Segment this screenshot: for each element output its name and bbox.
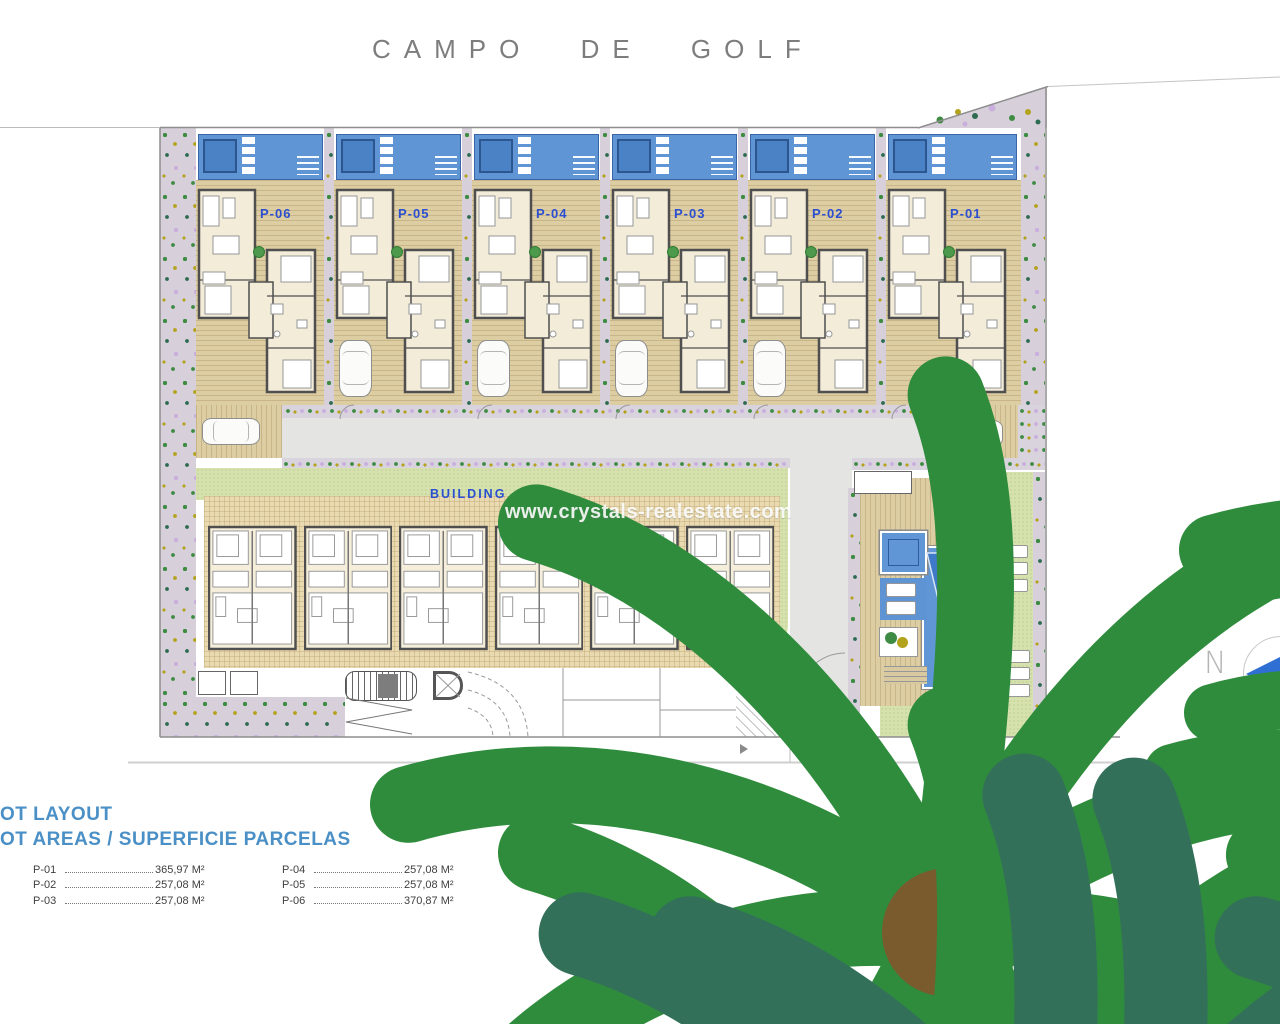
compass-north-label: N <box>1204 646 1226 681</box>
compass-needle-icon <box>1246 657 1280 691</box>
legend-row: P-05 257,08 M² <box>282 876 462 892</box>
plot-area-value: 257,08 M² <box>155 879 213 891</box>
plot-pool <box>888 134 1017 180</box>
pool-slats <box>380 137 393 177</box>
road-south-garden-band <box>282 458 790 468</box>
plot-pool <box>336 134 461 180</box>
plot-name: P-03 <box>33 895 63 907</box>
storage-box <box>198 671 226 695</box>
dotted-leader <box>314 872 402 873</box>
sun-lounger <box>966 706 978 734</box>
plot-name: P-06 <box>282 895 312 907</box>
plot-label: P-03 <box>674 206 705 221</box>
pool-steps-icon <box>991 156 1013 175</box>
plot-area-value: 257,08 M² <box>404 864 462 876</box>
dotted-leader <box>65 887 153 888</box>
elevator <box>433 671 463 700</box>
plot-pool <box>750 134 875 180</box>
sun-lounger <box>886 601 916 615</box>
plot-side-garden <box>324 128 334 405</box>
pool-spa <box>617 139 651 173</box>
sun-lounger <box>948 706 960 734</box>
pool-steps-icon <box>711 156 733 175</box>
main-pool <box>922 546 992 689</box>
plot-cell: P-03 <box>610 128 748 405</box>
legend-row: P-04 257,08 M² <box>282 860 462 876</box>
dotted-leader <box>314 903 402 904</box>
legend-row: P-06 370,87 M² <box>282 891 462 907</box>
car <box>753 340 786 397</box>
plant <box>885 632 897 644</box>
apartment-unit-floorplan <box>304 524 393 652</box>
car <box>202 418 260 445</box>
pool-slats <box>794 137 807 177</box>
car <box>339 340 372 397</box>
pool-spa <box>341 139 375 173</box>
legend-subtitle: OT AREAS / SUPERFICIE PARCELAS <box>0 829 351 851</box>
pool-spa <box>893 139 927 173</box>
dotted-leader <box>314 887 402 888</box>
left-garden-strip <box>160 128 196 737</box>
sun-lounger <box>984 706 996 734</box>
building-units <box>208 524 774 652</box>
plot-name: P-04 <box>282 864 312 876</box>
pool-area-east-garden <box>1033 472 1045 737</box>
building-label: BUILDING <box>430 487 506 501</box>
sun-lounger <box>886 583 916 597</box>
legend-row: P-02 257,08 M² <box>33 876 213 892</box>
plant <box>990 515 1000 525</box>
sun-lounger <box>1000 562 1028 575</box>
plot-side-garden <box>738 128 748 405</box>
page-title: CAMPO DE GOLF <box>372 34 814 65</box>
plot-name: P-02 <box>33 879 63 891</box>
plot-side-garden <box>876 128 886 405</box>
car <box>615 340 648 397</box>
apartment-unit-floorplan <box>208 524 297 652</box>
legend-row: P-03 257,08 M² <box>33 891 213 907</box>
dotted-leader <box>65 872 153 873</box>
sun-lounger <box>1002 667 1030 680</box>
bottom-left-garden <box>160 697 345 737</box>
plot-name: P-05 <box>282 879 312 891</box>
pool-slats <box>656 137 669 177</box>
pool-slats <box>518 137 531 177</box>
plot-cell: P-06 <box>196 128 334 405</box>
plot-cell: P-05 <box>334 128 472 405</box>
watermark: www.crystals-realestate.com <box>505 501 792 524</box>
right-garden-band <box>1018 405 1045 458</box>
legend-row: P-01 365,97 M² <box>33 860 213 876</box>
apartment-unit-floorplan <box>686 524 775 652</box>
pool-area-north-garden <box>852 458 1045 470</box>
dotted-leader <box>65 903 153 904</box>
plot-name: P-01 <box>33 864 63 876</box>
pool-steps <box>884 666 927 684</box>
stairs <box>345 671 417 701</box>
apartment-unit-floorplan <box>495 524 584 652</box>
plot-area-value: 365,97 M² <box>155 864 213 876</box>
legend-title: OT LAYOUT <box>0 804 113 826</box>
plot-label: P-06 <box>260 206 291 221</box>
plot-pool <box>612 134 737 180</box>
car <box>945 420 1003 447</box>
house-floorplan <box>197 184 317 404</box>
pool-steps-icon <box>297 156 319 175</box>
pool-steps-icon <box>849 156 871 175</box>
legend-column-1: P-01 365,97 M² P-02 257,08 M² P-03 257,0… <box>33 860 213 907</box>
pool-steps-icon <box>435 156 457 175</box>
car <box>477 340 510 397</box>
pool-spa <box>203 139 237 173</box>
sun-lounger <box>1002 684 1030 697</box>
sun-lounger <box>1000 579 1028 592</box>
plot-side-garden <box>600 128 610 405</box>
plot-label: P-04 <box>536 206 567 221</box>
plot-area-value: 370,87 M² <box>404 895 462 907</box>
legend-column-2: P-04 257,08 M² P-05 257,08 M² P-06 370,8… <box>282 860 462 907</box>
access-court <box>790 458 852 737</box>
apartment-unit-floorplan <box>399 524 488 652</box>
site-plan-page: CAMPO DE GOLF <box>0 0 1280 1024</box>
plot-area-value: 257,08 M² <box>155 895 213 907</box>
plot-area-value: 257,08 M² <box>404 879 462 891</box>
plot-cell: P-01 <box>886 128 1045 405</box>
pool-slats <box>242 137 255 177</box>
plot-label: P-05 <box>398 206 429 221</box>
pool-spa <box>479 139 513 173</box>
front-garden-band <box>196 405 935 418</box>
storage-box <box>230 671 258 695</box>
pool-spa <box>755 139 789 173</box>
plot-side-garden <box>1021 128 1045 405</box>
plot-label: P-01 <box>950 206 981 221</box>
pool-pavilion <box>854 471 912 494</box>
pool-steps-icon <box>573 156 595 175</box>
plot-side-garden <box>462 128 472 405</box>
plot-cell: P-04 <box>472 128 610 405</box>
sun-lounger <box>1002 650 1030 663</box>
kids-pool <box>880 531 927 574</box>
sun-lounger <box>1000 545 1028 558</box>
plot-pool <box>198 134 323 180</box>
pool-area-west-garden <box>848 488 860 713</box>
plot-pool <box>474 134 599 180</box>
pool-slats <box>932 137 945 177</box>
apartment-unit-floorplan <box>590 524 679 652</box>
plot-cell: P-02 <box>748 128 886 405</box>
house-floorplan <box>887 184 1007 404</box>
plant <box>897 637 908 648</box>
plant <box>986 503 999 516</box>
plot-label: P-02 <box>812 206 843 221</box>
